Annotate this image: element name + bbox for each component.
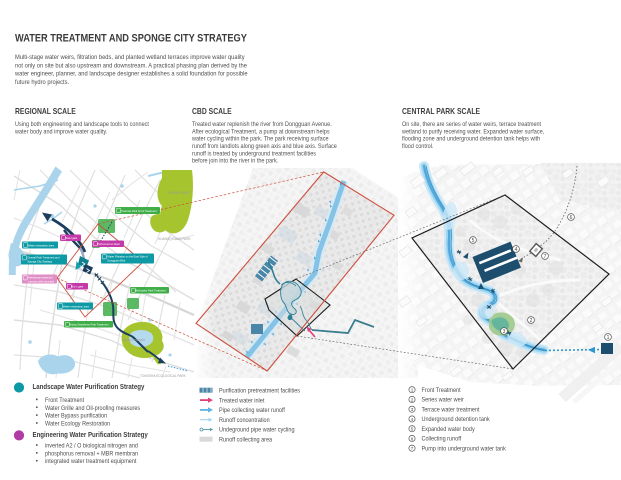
svg-text:On site, there are series of w: On site, there are series of water weirs… — [402, 122, 541, 128]
svg-text:Xiying Strawberry Park Treatme: Xiying Strawberry Park Treatment — [70, 322, 109, 326]
svg-text:phosphorus removal + MBR membr: phosphorus removal + MBR membran — [45, 451, 138, 457]
svg-text:3: 3 — [411, 407, 414, 412]
svg-text:5: 5 — [411, 427, 414, 432]
svg-text:Treated water inlet: Treated water inlet — [219, 398, 265, 404]
svg-text:Water restoration area: Water restoration area — [63, 304, 89, 308]
svg-text:flooding zone and underground: flooding zone and underground detention … — [402, 136, 540, 142]
svg-text:Undeground pipe water cycling: Undeground pipe water cycling — [219, 427, 295, 433]
svg-text:Front Treatment: Front Treatment — [422, 388, 461, 394]
svg-text:HUANGQISHAN PARK: HUANGQISHAN PARK — [158, 237, 191, 241]
svg-text:Underground detention tank: Underground detention tank — [422, 417, 490, 423]
svg-text:Landscape Water Purification S: Landscape Water Purification Strategy — [33, 384, 145, 391]
svg-text:Performed an ideal: Performed an ideal — [98, 242, 120, 246]
svg-text:future hydro projects.: future hydro projects. — [15, 78, 69, 85]
svg-text:process with industrial: process with industrial — [28, 279, 54, 283]
svg-text:4: 4 — [515, 247, 518, 253]
svg-text:7: 7 — [544, 254, 547, 260]
svg-text:before join into the river in: before join into the river in the park. — [192, 158, 279, 164]
svg-text:Water restoration area: Water restoration area — [28, 243, 54, 247]
svg-text:SHIJING PARK: SHIJING PARK — [168, 191, 190, 195]
svg-text:Treated water replenish the ri: Treated water replenish the river from D… — [192, 122, 332, 128]
svg-text:Yuanmei Park Front Treatment: Yuanmei Park Front Treatment — [121, 209, 157, 213]
svg-text:CBD SCALE: CBD SCALE — [192, 107, 232, 117]
svg-text:6: 6 — [570, 215, 573, 221]
svg-text:Front Treatment: Front Treatment — [45, 398, 84, 404]
svg-text:5: 5 — [472, 238, 475, 244]
svg-text:Collecting runoff: Collecting runoff — [422, 436, 462, 442]
svg-text:not only on site but also upst: not only on site but also upstream and d… — [15, 62, 247, 69]
svg-text:Runoff concentration: Runoff concentration — [219, 418, 270, 424]
svg-text:water engineer, planner, and l: water engineer, planner, and landscape d… — [14, 70, 248, 77]
svg-text:1: 1 — [607, 335, 610, 341]
svg-text:Water Ecology Restoration: Water Ecology Restoration — [45, 421, 110, 427]
svg-text:Purification pretreatment faci: Purification pretreatment facilities — [219, 388, 300, 394]
svg-text:WATER TREATMENT AND SPONGE CIT: WATER TREATMENT AND SPONGE CITY STRATEGY — [15, 33, 247, 45]
svg-text:7: 7 — [411, 446, 414, 451]
svg-text:Water Grille and Oil-proofing: Water Grille and Oil-proofing measures — [45, 405, 140, 411]
svg-text:inverted A2 / O biological nit: inverted A2 / O biological nitrogen and — [45, 443, 138, 449]
svg-text:Bethualen Park Treatment: Bethualen Park Treatment — [136, 288, 166, 292]
svg-text:CENTRAL PARK SCALE: CENTRAL PARK SCALE — [402, 107, 480, 117]
svg-text:1: 1 — [411, 388, 414, 393]
svg-text:TONGSHA ECOLOGICAL PARK: TONGSHA ECOLOGICAL PARK — [140, 374, 186, 378]
svg-text:water cycling within the park.: water cycling within the park. The park … — [191, 136, 329, 142]
svg-text:Series water weir: Series water weir — [422, 397, 464, 403]
svg-text:Runoff collecting area: Runoff collecting area — [219, 437, 273, 443]
svg-text:Dongguan Blvd: Dongguan Blvd — [107, 258, 125, 262]
svg-text:Sponge City Strategy: Sponge City Strategy — [27, 259, 52, 263]
svg-text:Expanded water body: Expanded water body — [422, 427, 475, 433]
svg-text:Multi-stage water weirs, filtr: Multi-stage water weirs, filtration beds… — [15, 54, 245, 61]
svg-text:Using both engineering and lan: Using both engineering and landscape too… — [15, 122, 149, 128]
svg-text:Xiying Reservoir: Xiying Reservoir — [122, 338, 146, 342]
svg-text:runoff from landlots along gre: runoff from landlots along green axis an… — [192, 144, 337, 150]
svg-text:2: 2 — [530, 318, 533, 324]
svg-text:Terrace water treatment: Terrace water treatment — [422, 407, 480, 413]
svg-text:2: 2 — [411, 397, 414, 402]
svg-text:flood control.: flood control. — [402, 144, 434, 150]
svg-text:wetland to purify receiving wa: wetland to purify receiving water. Expan… — [401, 129, 544, 135]
svg-text:runoff is treated by undergrou: runoff is treated by underground treatme… — [192, 151, 316, 157]
svg-text:4: 4 — [411, 417, 414, 422]
svg-text:water body and improve water q: water body and improve water quality. — [14, 129, 107, 135]
svg-text:Bio-x gate: Bio-x gate — [72, 284, 84, 288]
svg-text:6: 6 — [411, 436, 414, 441]
svg-text:Steel gate: Steel gate — [66, 236, 78, 240]
svg-text:After ecological Treatment, a: After ecological Treatment, a pump at do… — [192, 129, 330, 135]
svg-text:REGIONAL SCALE: REGIONAL SCALE — [15, 107, 76, 117]
svg-text:Pump into underground water ta: Pump into underground water tank — [422, 446, 506, 452]
svg-text:Pipe collecting water runoff: Pipe collecting water runoff — [219, 408, 285, 414]
svg-text:Engineering Water Purification: Engineering Water Purification Strategy — [33, 431, 149, 438]
svg-text:3: 3 — [503, 329, 506, 335]
svg-text:integrated water treatment equ: integrated water treatment equipment — [45, 459, 137, 465]
svg-text:Water Bypass purification: Water Bypass purification — [45, 413, 107, 419]
